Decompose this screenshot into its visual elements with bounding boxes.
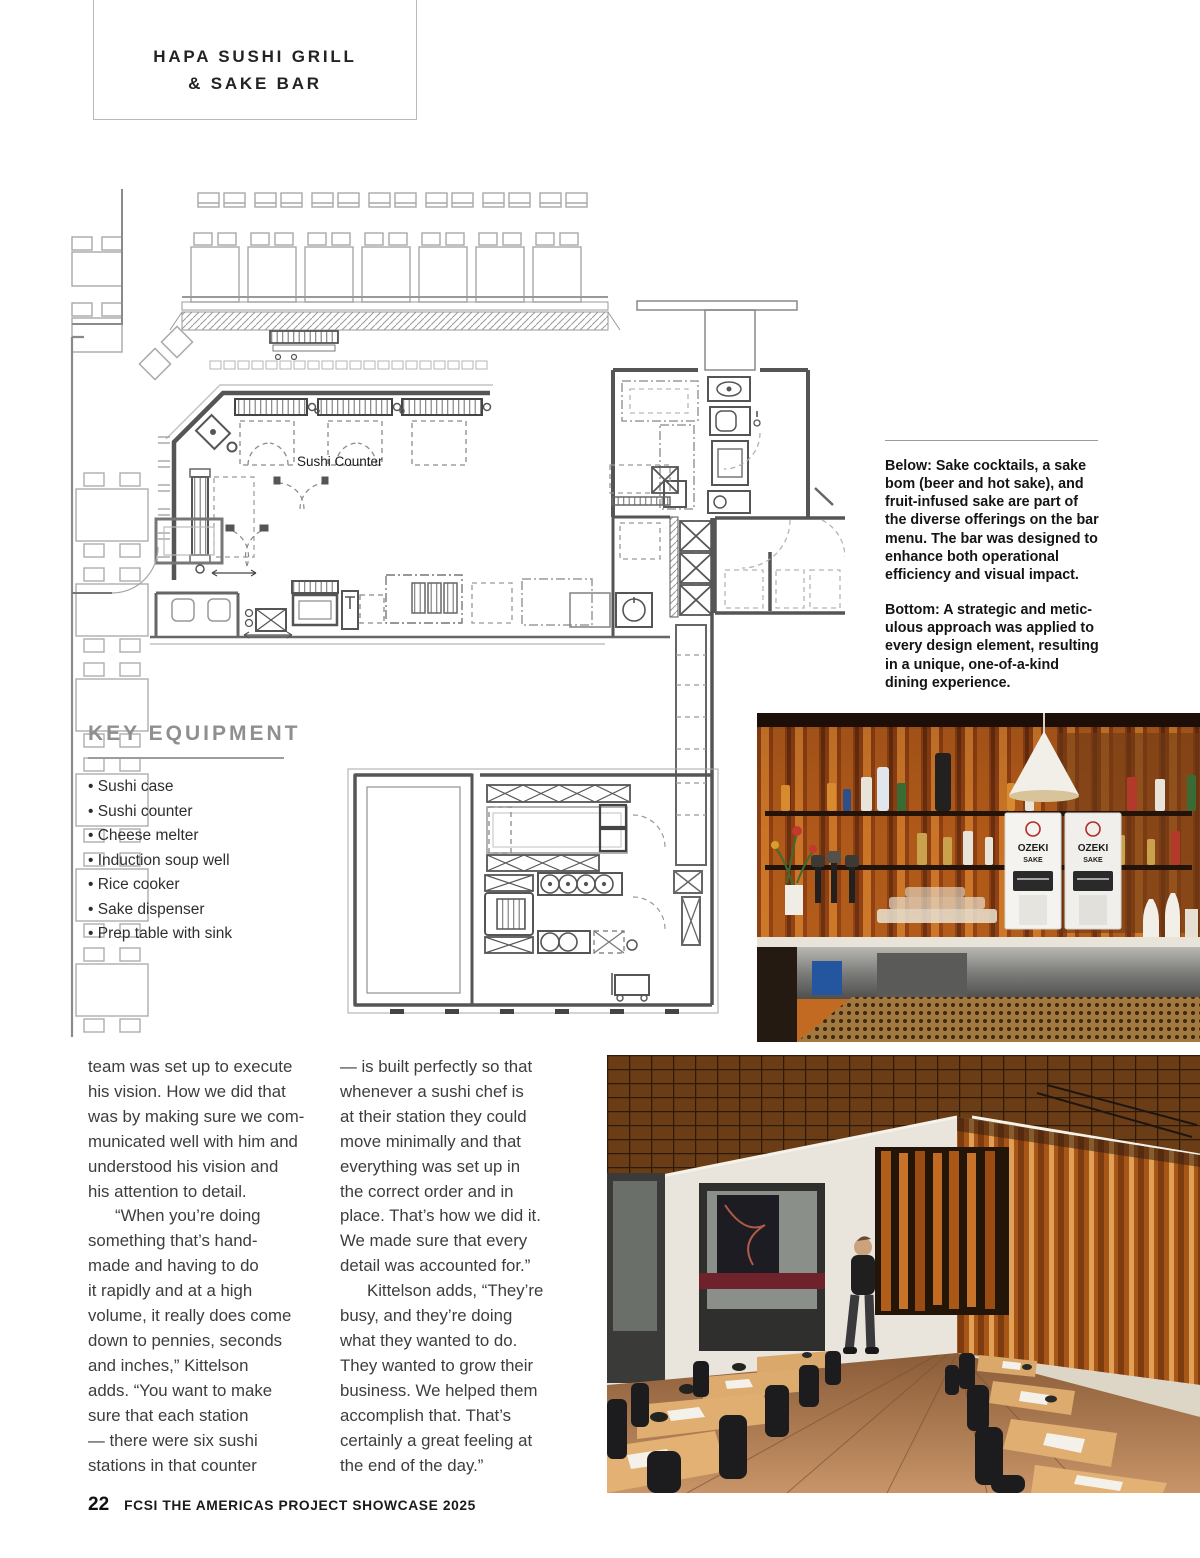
equipment-item: Prep table with sink — [88, 922, 368, 947]
article-column-1: team was set up to execute his vision. H… — [88, 1055, 328, 1478]
plan-banquette — [170, 297, 620, 330]
xbox-corridor — [652, 467, 712, 617]
sushi-counter-label: Sushi Counter — [297, 454, 383, 469]
plan-kitchen — [348, 769, 718, 1014]
article-column-2: — is built perfectly so that whenever a … — [340, 1055, 582, 1478]
article-title-box: HAPA SUSHI GRILL & SAKE BAR — [93, 0, 417, 120]
caption-rule — [885, 440, 1098, 441]
photo-captions: Below: Sake cocktails, a sake bom (beer … — [885, 440, 1121, 709]
equipment-item: Cheese melter — [88, 824, 368, 849]
center-dividers — [875, 1147, 1009, 1315]
equipment-item: Induction soup well — [88, 849, 368, 874]
rice-cooker-station — [196, 415, 236, 451]
plan-top-seating — [191, 193, 587, 302]
handwash-sink — [570, 523, 660, 627]
prep-table-unit — [386, 575, 462, 623]
dispenser-brand-label: OZEKI — [1078, 843, 1109, 854]
plan-right-rooms — [570, 301, 808, 637]
page-footer: 22 FCSI THE AMERICAS PROJECT SHOWCASE 20… — [88, 1494, 476, 1516]
key-equipment-rule — [88, 757, 284, 759]
beer-taps — [811, 851, 859, 903]
kitchen-worktables — [487, 785, 630, 871]
drip-tray-grate — [797, 997, 1200, 1042]
article-paragraph: team was set up to execute his vision. H… — [88, 1055, 328, 1204]
recycle-bin — [812, 961, 842, 995]
dispenser-type-label: SAKE — [1083, 857, 1103, 864]
plan-restrooms — [715, 488, 845, 613]
prep-sink-line — [708, 377, 760, 513]
sushi-cases — [235, 399, 482, 415]
plan-sushi-counter: Sushi Counter — [139, 326, 493, 580]
publication-title: FCSI THE AMERICAS PROJECT SHOWCASE 2025 — [124, 1498, 476, 1513]
service-counter — [270, 331, 338, 360]
equipment-item: Sushi case — [88, 775, 368, 800]
key-equipment-section: KEY EQUIPMENT Sushi case Sushi counter C… — [88, 722, 368, 947]
kitchen-cart — [612, 973, 649, 1001]
cheese-melter-unit — [342, 591, 358, 629]
dining-photo — [607, 1055, 1200, 1493]
equipment-item: Sake dispenser — [88, 898, 368, 923]
double-door-arcs — [233, 483, 326, 566]
page-number: 22 — [88, 1494, 109, 1516]
equipment-item: Sushi counter — [88, 800, 368, 825]
article-paragraph: — is built perfectly so that whenever a … — [340, 1055, 582, 1279]
soup-well-unit — [244, 609, 292, 638]
equipment-item: Rice cooker — [88, 873, 368, 898]
bar-photo: OZEKI SAKE OZEKI SAKE — [757, 713, 1200, 1042]
article-paragraph: Kittelson adds, “They’re busy, and they’… — [340, 1279, 582, 1478]
caption-below: Below: Sake cocktails, a sake bom (beer … — [885, 457, 1121, 584]
key-equipment-heading: KEY EQUIPMENT — [88, 722, 368, 746]
caption-bottom: Bottom: A strategic and metic- ulous app… — [885, 601, 1121, 692]
article-paragraph: “When you’re doing something that’s hand… — [88, 1204, 328, 1478]
hooded-unit — [292, 581, 338, 625]
dispenser-brand-label: OZEKI — [1018, 843, 1049, 854]
kitchen-cookline — [485, 873, 637, 953]
plan-midband — [72, 519, 605, 644]
article-title: HAPA SUSHI GRILL & SAKE BAR — [153, 44, 356, 97]
plan-topleft-seating — [72, 237, 122, 352]
dispenser-type-label: SAKE — [1023, 857, 1043, 864]
